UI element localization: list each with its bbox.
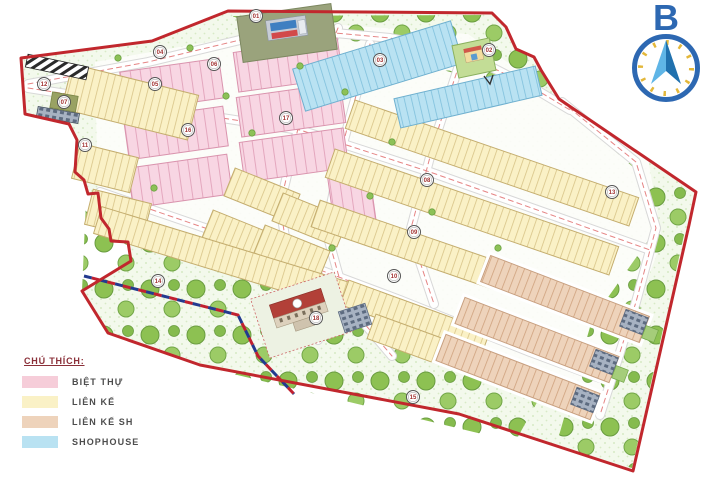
legend-item-shophouse: SHOPHOUSE <box>22 436 172 448</box>
badge-label: 04 <box>157 50 164 56</box>
badge-label: 12 <box>41 82 48 88</box>
badge-label: 13 <box>609 190 616 196</box>
badge-label: 11 <box>82 143 89 149</box>
legend-label: LIÊN KẾ <box>72 397 115 407</box>
master-plan-page: 01 02 03 04 05 06 07 08 09 10 11 12 13 1… <box>0 0 720 480</box>
badge-label: 09 <box>411 230 418 236</box>
badge-label: 15 <box>410 395 417 401</box>
legend-item-lien-ke: LIÊN KẾ <box>22 396 172 408</box>
legend-swatch-townhouse <box>22 396 58 408</box>
badge-label: 07 <box>61 100 68 106</box>
legend-swatch-shophouse <box>22 436 58 448</box>
legend-item-lien-ke-sh: LIÊN KẾ SH <box>22 416 172 428</box>
compass: B <box>635 0 698 100</box>
badge-label: 05 <box>152 82 159 88</box>
badge-label: 18 <box>313 316 320 322</box>
badge-label: 03 <box>377 58 384 64</box>
legend-label: BIỆT THỰ <box>72 377 123 387</box>
legend-swatch-townhouse-sh <box>22 416 58 428</box>
badge-label: 17 <box>283 116 290 122</box>
compass-north-label: B <box>653 0 679 38</box>
badge-label: 16 <box>185 128 192 134</box>
legend-item-biet-thu: BIỆT THỰ <box>22 376 172 388</box>
badge-label: 10 <box>391 274 398 280</box>
legend-swatch-villa <box>22 376 58 388</box>
legend-label: LIÊN KẾ SH <box>72 417 134 427</box>
badge-label: 02 <box>486 48 493 54</box>
legend-label: SHOPHOUSE <box>72 437 139 447</box>
legend-title: CHÚ THÍCH: <box>24 356 172 366</box>
badge-label: 14 <box>155 279 162 285</box>
badge-label: 01 <box>253 14 260 20</box>
badge-label: 08 <box>424 178 431 184</box>
legend: CHÚ THÍCH: BIỆT THỰ LIÊN KẾ LIÊN KẾ SH S… <box>22 356 172 456</box>
badge-label: 06 <box>211 62 218 68</box>
